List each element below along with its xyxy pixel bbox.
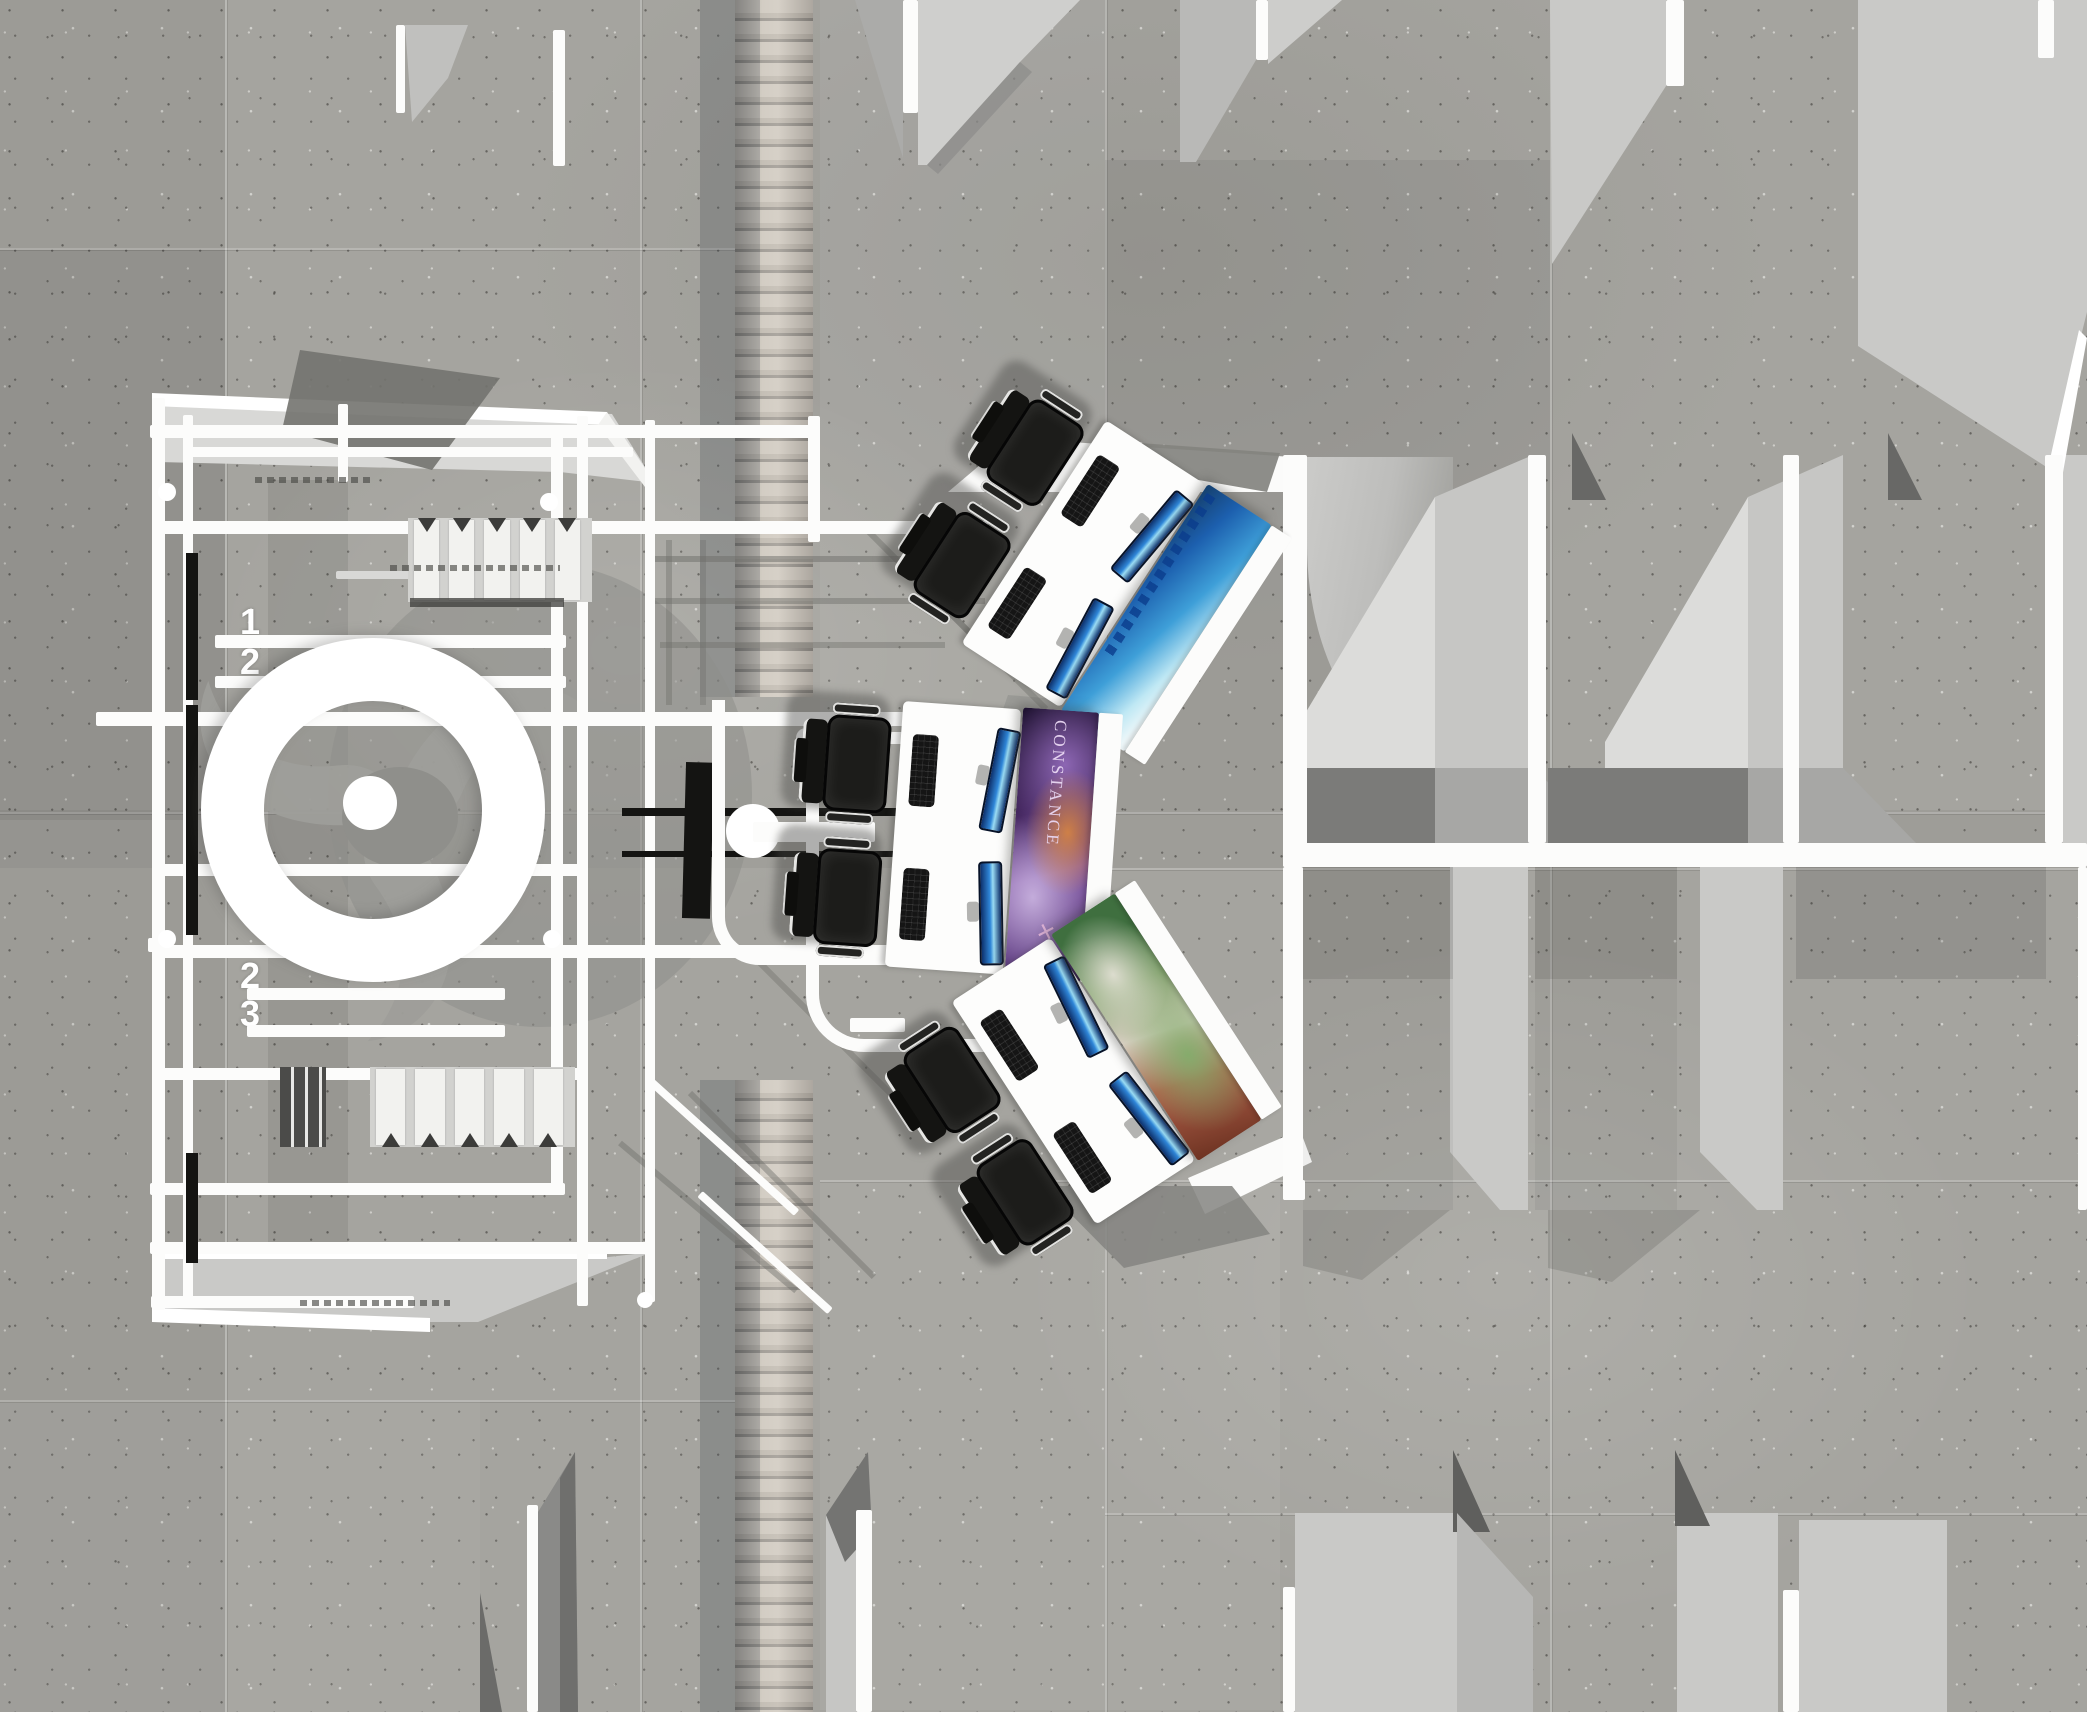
partition-wall-line	[2045, 455, 2063, 843]
partition-wall-line	[527, 1505, 538, 1712]
wall-b-bright	[1605, 497, 1748, 768]
truss-dark-bar	[186, 705, 198, 935]
louver-notch	[500, 1133, 518, 1147]
louver-notch	[461, 1133, 479, 1147]
louver-slat	[449, 520, 474, 600]
partition-wall-line	[1783, 455, 1799, 843]
partition-wall-line	[1666, 0, 1684, 86]
partition-wall-line	[903, 0, 918, 113]
louver-notch	[523, 518, 541, 532]
floor-plan-stage: 1 2 2 3 CONSTANCE✕	[0, 0, 2087, 1712]
slab-pair-left	[1180, 0, 1256, 162]
keyboard	[899, 868, 930, 942]
wall-a-side	[1435, 455, 1533, 768]
scaffold-post	[808, 416, 820, 542]
wall-row2-a	[1450, 867, 1528, 1210]
floor-tr-a	[1550, 0, 1666, 264]
office-chair	[786, 838, 890, 956]
scaffold-beam	[247, 988, 505, 1000]
partition-wall-line	[1283, 867, 1303, 1200]
joint-dot	[158, 930, 176, 948]
partition-wall-line	[1283, 1180, 1305, 1200]
scaffold-beam	[150, 1242, 647, 1254]
partition-wall-line	[1283, 843, 2087, 867]
wall-row2-b	[1700, 867, 1783, 1210]
chair-seat	[822, 714, 893, 814]
joint-dot	[540, 493, 558, 511]
louver-notch	[382, 1133, 400, 1147]
band-b-light	[1748, 768, 1916, 843]
monitor-stand	[967, 902, 979, 922]
scaffold-beam	[247, 1025, 505, 1037]
joint-dot	[637, 1292, 653, 1308]
louver-notch	[488, 518, 506, 532]
partition-wall-line	[1283, 455, 1307, 867]
chair-seat	[812, 848, 883, 948]
slab-top-right	[918, 0, 1080, 165]
louver-notch	[418, 518, 436, 532]
scaffold-post	[553, 30, 565, 166]
shadow-row2-b	[1548, 1210, 1700, 1282]
scaffold-post	[152, 398, 165, 1310]
poster-title: CONSTANCE	[1042, 719, 1071, 848]
partition-wall-line	[1783, 1590, 1799, 1712]
wall-a-bright	[1288, 497, 1435, 768]
white-ring-structure	[201, 638, 545, 982]
slab-pair-right	[1268, 0, 1342, 64]
keyboard	[908, 734, 939, 808]
partition-wall-line	[856, 1510, 872, 1712]
louver-slat	[484, 520, 509, 600]
monitor-screen	[978, 861, 1004, 965]
band-b-dark	[1548, 768, 1748, 843]
partition-wall-line	[1283, 1587, 1295, 1712]
joint-dot	[543, 930, 561, 948]
partition-wall-line	[1256, 0, 1268, 60]
louver-notch	[453, 518, 471, 532]
scaffold-post	[645, 420, 655, 1302]
truss-dark-bar	[186, 1153, 198, 1263]
louver-slat	[555, 520, 580, 600]
tip-row1-a	[1572, 433, 1606, 500]
louver-slat	[520, 520, 545, 600]
bottom-wall-far-left	[480, 1593, 502, 1712]
scaffold-beam	[150, 1183, 565, 1195]
monitor	[966, 861, 1008, 962]
floor-row3-mid	[1457, 1513, 1533, 1712]
bottom-wall-left-dark	[560, 1452, 578, 1712]
louver-bench	[370, 1067, 575, 1147]
scaffold-beam	[150, 425, 812, 438]
scaffold-post	[396, 25, 405, 113]
tip-row1-b	[1888, 433, 1922, 500]
partition-wall-line	[2038, 0, 2054, 58]
chair-armrest	[825, 811, 874, 825]
louver-notch	[421, 1133, 439, 1147]
louver-notch	[539, 1133, 557, 1147]
office-chair	[795, 704, 899, 822]
truss-dark-bar	[682, 762, 714, 919]
wedge-top-left	[855, 0, 903, 158]
striped-crate	[280, 1067, 326, 1147]
shadow-row2-a	[1303, 1210, 1450, 1280]
partition-wall-line	[2078, 867, 2087, 1210]
floor-tr-b	[1858, 0, 2087, 468]
joint-dot	[158, 483, 176, 501]
level-label-2: 2	[240, 644, 260, 680]
band-a-dark	[1288, 768, 1435, 843]
louver-notch	[558, 518, 576, 532]
slab-top-left	[405, 25, 468, 122]
scaffold-post	[338, 404, 348, 482]
tip-row3-b	[1675, 1450, 1710, 1526]
partition-wall-line	[1528, 455, 1546, 843]
louver-slat	[414, 520, 439, 600]
louver-bench	[408, 518, 592, 602]
scaffold-beam	[183, 447, 633, 457]
truss-dark-bar	[186, 553, 198, 700]
